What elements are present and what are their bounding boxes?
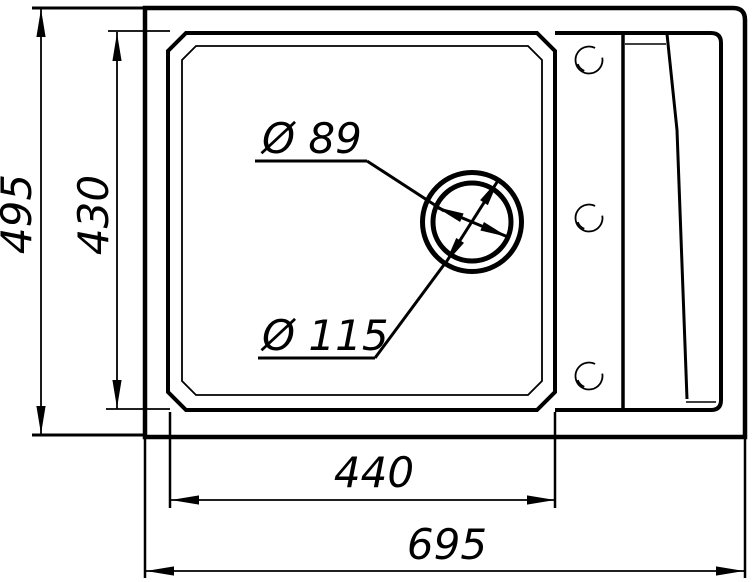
- tap-hole-middle: [573, 202, 604, 233]
- tap-hole-bottom: [573, 360, 604, 391]
- sink-technical-drawing: Ø 89 Ø 115 495 430 440: [0, 0, 754, 582]
- arrowhead: [146, 566, 174, 575]
- dimension-drain-115: Ø 115: [258, 177, 503, 360]
- sink-body: [145, 8, 745, 437]
- leader-line: [367, 161, 444, 211]
- right-section-outline: [555, 33, 721, 410]
- arrowhead: [171, 495, 199, 504]
- dimension-bowl-width: 440: [170, 412, 556, 508]
- arrowhead: [112, 33, 121, 61]
- dim-label-drain-89: Ø 89: [260, 114, 362, 163]
- dimension-overall-width: 695: [145, 439, 745, 578]
- tap-hole-circle: [573, 360, 604, 391]
- tap-hole-circle: [573, 44, 604, 75]
- dim-label-430: 430: [69, 175, 118, 255]
- dim-label-495: 495: [0, 174, 41, 254]
- arrowhead: [36, 9, 45, 37]
- tap-hole-top: [573, 44, 604, 75]
- dim-label-695: 695: [407, 520, 487, 569]
- dimension-bowl-height: 430: [69, 31, 170, 409]
- arrowhead: [36, 406, 45, 434]
- tap-hole-circle: [573, 202, 604, 233]
- drainboard-slope-line: [667, 34, 687, 399]
- sink-outer-edge: [145, 8, 745, 437]
- dim-label-440: 440: [334, 448, 414, 497]
- arrowhead: [112, 380, 121, 408]
- arrowhead: [716, 566, 744, 575]
- arrowhead: [527, 495, 555, 504]
- drawing-canvas: Ø 89 Ø 115 495 430 440: [0, 0, 754, 582]
- dim-label-drain-115: Ø 115: [260, 311, 389, 360]
